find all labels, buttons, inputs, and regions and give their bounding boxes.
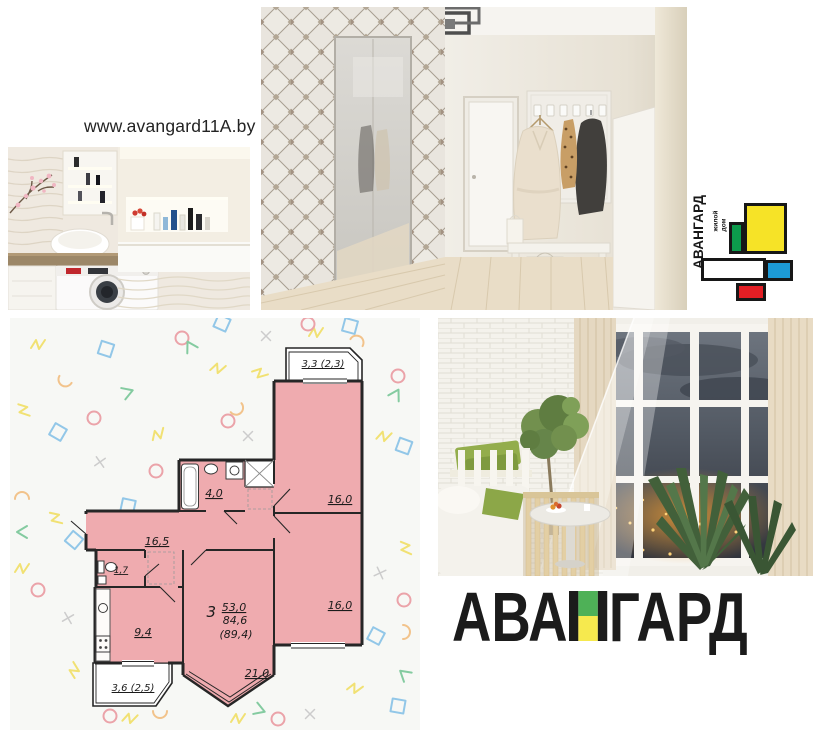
label-area-with-balconies: (89,4) [219, 628, 252, 641]
brand-title-part1: АВА [452, 578, 568, 656]
letter-n-right-bar [598, 591, 607, 641]
logo-red-rect [736, 283, 766, 301]
letter-n-green-block [578, 591, 598, 616]
sofa [438, 486, 530, 576]
logo-white-rect [701, 258, 766, 281]
label-kitchen: 9,4 [134, 626, 152, 639]
avangard-logo: АВАНГАРД жилойдом [698, 174, 810, 308]
bathroom-photo [8, 147, 250, 310]
mirror-wardrobe [335, 37, 411, 289]
label-hallway: 16,5 [145, 535, 170, 548]
mirror-cabinet [63, 151, 117, 215]
label-rooms-count: 3 [206, 603, 216, 621]
label-bedroom-1: 16,0 [328, 493, 353, 506]
hallway-photo [261, 7, 687, 310]
label-bedroom-2: 16,0 [328, 599, 353, 612]
floorplan-card: 3,3 (2,3) 16,0 16,0 4,0 16,5 1,7 9,4 3,6… [10, 318, 420, 730]
brand-title-part2: ГАРД [609, 578, 748, 656]
bathtub [118, 242, 250, 272]
label-total-area: 84,6 [223, 614, 248, 627]
poster-page: { "header": { "website_url": "www.avanga… [0, 0, 820, 752]
logo-tagline-word1: жилой [713, 211, 720, 232]
cosmetics-niche [126, 197, 228, 232]
bath-cabinet [8, 266, 56, 310]
logo-yellow-square [744, 203, 787, 254]
logo-green-rect [729, 222, 744, 254]
label-living-room: 21,0 [245, 667, 270, 680]
label-bathroom: 4,0 [205, 487, 223, 500]
logo-blue-rect [765, 260, 793, 281]
label-balcony-top: 3,3 (2,3) [302, 359, 345, 370]
logo-tagline-word2: дом [721, 218, 728, 231]
label-living-area: 53,0 [222, 601, 247, 614]
washing-machine [56, 266, 158, 310]
label-balcony-bottom: 3,6 (2,5) [112, 683, 155, 694]
website-url: www.avangard11A.by [84, 116, 256, 137]
letter-n-left-bar [569, 591, 578, 641]
brand-letter-n [569, 591, 607, 641]
logo-tagline: жилойдом [713, 211, 729, 232]
leopard-scarf [560, 119, 577, 189]
brand-title: АВАГАРД [452, 582, 748, 652]
living-room-photo [438, 318, 813, 576]
letter-n-yellow-block [578, 616, 598, 641]
wall-pillar [655, 7, 687, 310]
shoe-cabinet [613, 107, 655, 310]
label-wc: 1,7 [114, 566, 129, 576]
white-tote-bag [507, 216, 523, 245]
